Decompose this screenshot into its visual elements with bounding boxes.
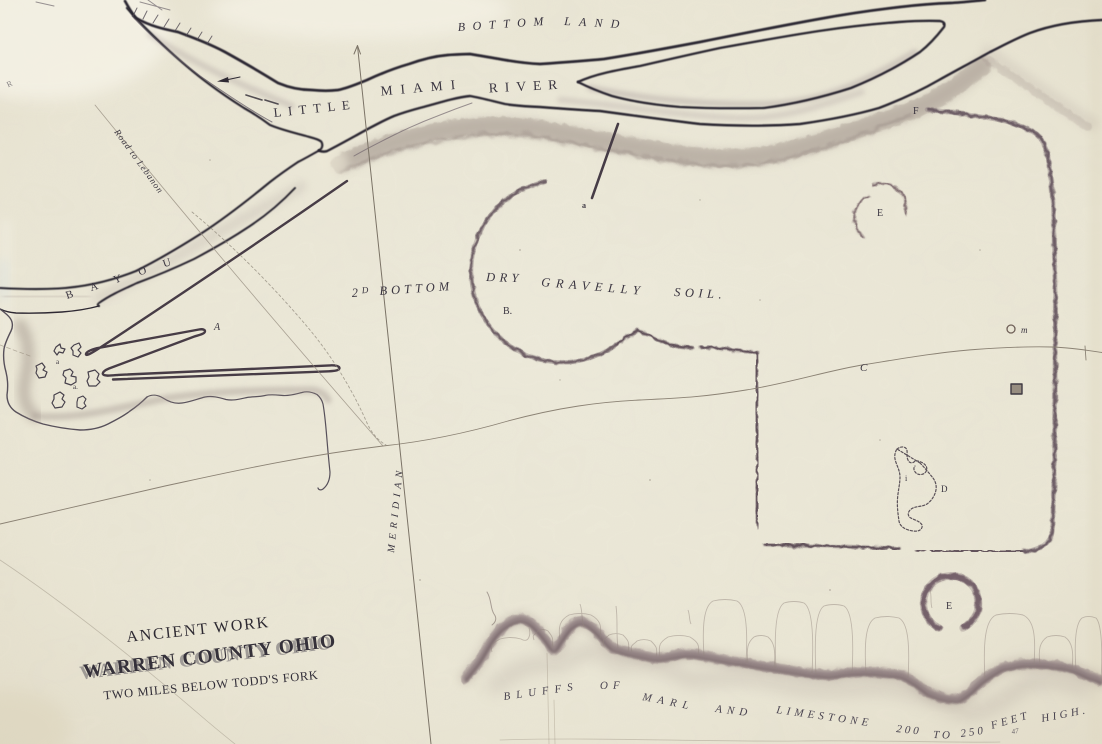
svg-text:A: A — [213, 322, 221, 333]
svg-text:SOIL.: SOIL. — [674, 285, 727, 302]
svg-text:TO: TO — [933, 729, 953, 742]
svg-text:a.: a. — [73, 383, 78, 391]
svg-text:C: C — [860, 362, 868, 374]
svg-text:a: a — [582, 201, 586, 210]
svg-text:D: D — [941, 484, 948, 494]
svg-text:DRY: DRY — [485, 270, 523, 285]
svg-text:E: E — [877, 208, 883, 219]
svg-text:OF: OF — [600, 680, 625, 692]
svg-text:E: E — [946, 601, 952, 612]
svg-text:F: F — [913, 106, 919, 117]
svg-text:B.: B. — [503, 306, 512, 317]
svg-text:m: m — [1021, 325, 1028, 335]
